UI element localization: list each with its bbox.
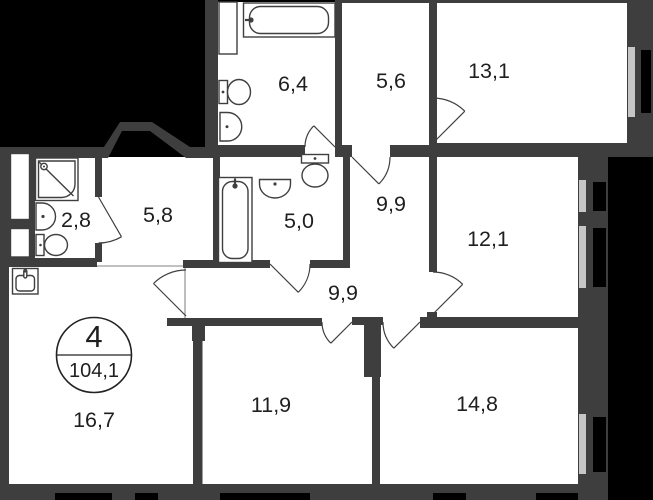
rooms-count-label: 4 [85, 319, 102, 354]
window-room-121-a [579, 180, 586, 212]
room-area-label-119: 11,9 [251, 393, 291, 417]
room-area-label-28: 2,8 [61, 208, 91, 232]
window-room-148 [579, 414, 586, 474]
apartment-summary-badge: 4 104,1 [57, 318, 132, 393]
room-area-label-64: 6,4 [278, 72, 308, 96]
sink-icon [36, 203, 56, 230]
bathtub-icon [219, 178, 253, 263]
bathtub-icon [244, 3, 336, 37]
room-area-label-99a: 9,9 [376, 192, 406, 216]
kitchen-sink-icon [13, 269, 39, 295]
room-area-label-99b: 9,9 [328, 281, 358, 305]
room-area-label-121: 12,1 [467, 227, 509, 251]
shower-icon [36, 158, 79, 201]
duct-shaft [11, 229, 30, 258]
room-area-label-50: 5,0 [284, 209, 314, 233]
room-area-label-58: 5,8 [143, 203, 173, 227]
floor-plan-svg: 6,4 5,6 13,1 2,8 5,8 5,0 9,9 12,1 9,9 16… [0, 0, 653, 500]
total-area-label: 104,1 [69, 360, 119, 382]
toilet-icon [302, 155, 329, 188]
toilet-icon [219, 80, 251, 105]
duct-shaft [219, 2, 237, 54]
floor-plan-page: 6,4 5,6 13,1 2,8 5,8 5,0 9,9 12,1 9,9 16… [0, 0, 653, 500]
toilet-icon [36, 235, 68, 256]
window-room-121-b [579, 226, 586, 288]
room-area-label-148: 14,8 [456, 392, 498, 416]
room-area-label-167: 16,7 [73, 408, 115, 432]
room-area-label-56: 5,6 [376, 69, 406, 93]
window-room-131 [628, 47, 635, 117]
room-area-label-131: 13,1 [468, 59, 510, 83]
duct-shaft [11, 154, 30, 220]
sink-icon [220, 113, 242, 142]
